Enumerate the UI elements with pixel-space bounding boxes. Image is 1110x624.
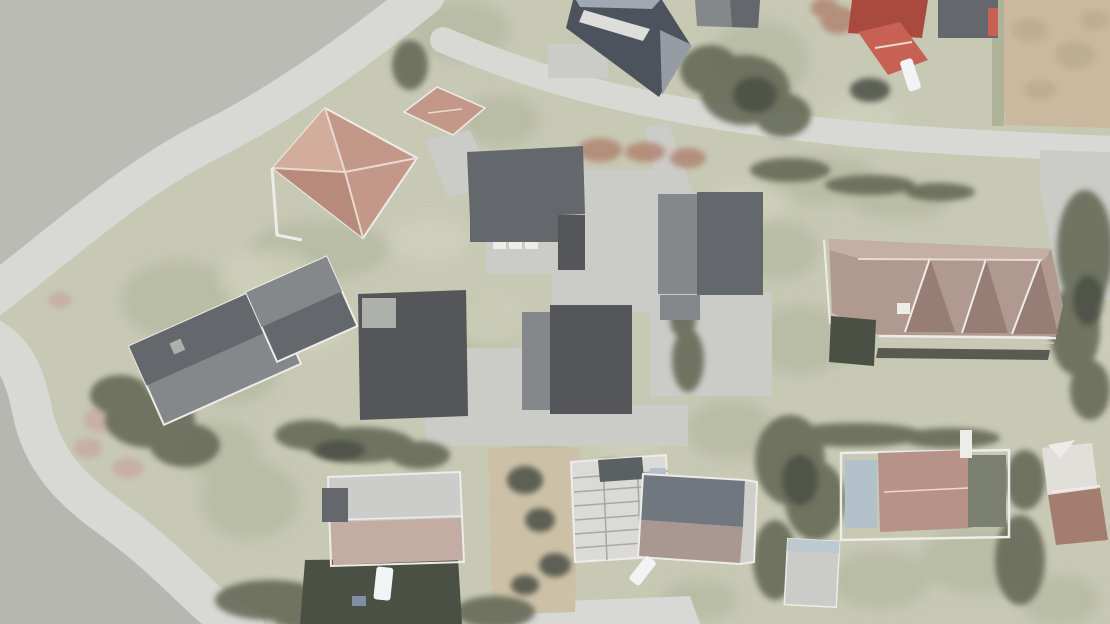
- haze-overlay: [0, 0, 1110, 624]
- aerial-photo-canvas: [0, 0, 1110, 624]
- aerial-photo: [0, 0, 1110, 624]
